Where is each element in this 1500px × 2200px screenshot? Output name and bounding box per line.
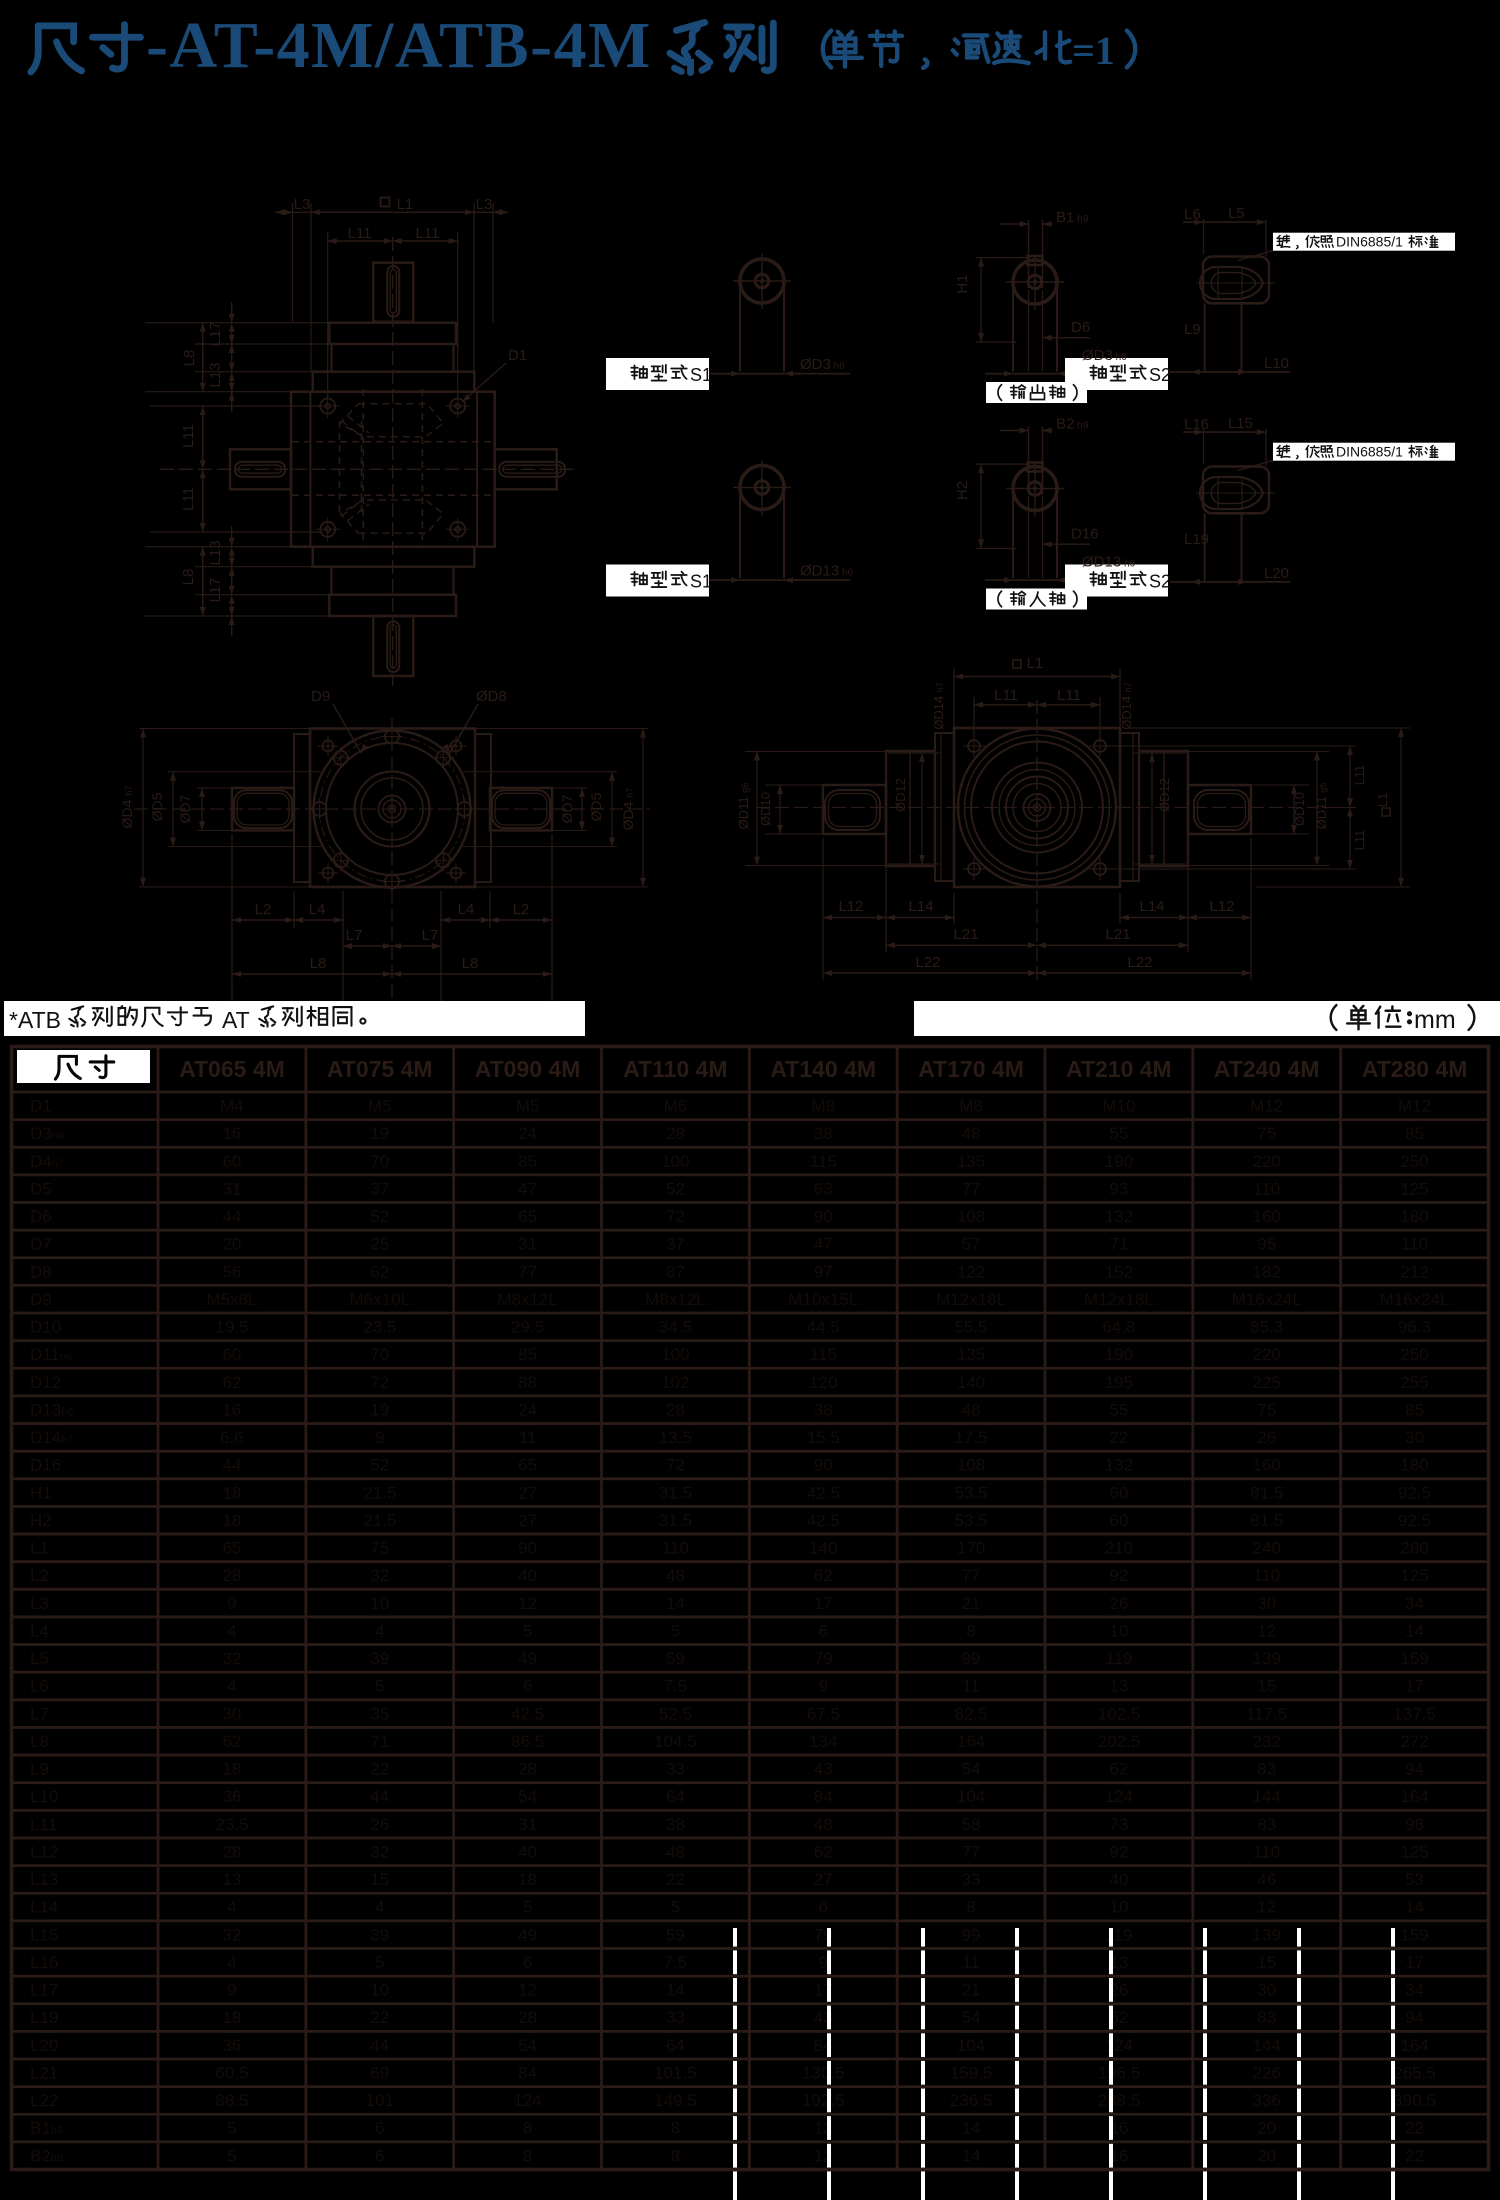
svg-text:ØD11 g6: ØD11 g6: [1314, 783, 1329, 830]
svg-text:L2: L2: [255, 901, 272, 918]
svg-text:60: 60: [1109, 1511, 1128, 1530]
svg-text:10: 10: [370, 1981, 389, 2000]
svg-text:18: 18: [222, 1760, 241, 1779]
svg-text:54: 54: [518, 2036, 537, 2055]
svg-text:48: 48: [666, 1842, 685, 1861]
svg-text:33: 33: [962, 1870, 981, 1889]
svg-text:97: 97: [814, 1262, 833, 1281]
svg-text:39: 39: [370, 1649, 389, 1668]
svg-text:124: 124: [1105, 2036, 1133, 2055]
svg-text:336: 336: [1253, 2091, 1281, 2110]
svg-text:190: 190: [1105, 1345, 1133, 1364]
svg-text:8: 8: [966, 1898, 975, 1917]
svg-text:125: 125: [1400, 1566, 1428, 1585]
svg-text:62: 62: [370, 1262, 389, 1281]
svg-text:ØD12: ØD12: [893, 778, 908, 812]
svg-text:L1: L1: [397, 196, 414, 213]
svg-text:110: 110: [1253, 1842, 1280, 1861]
svg-text:L3: L3: [476, 196, 493, 213]
svg-text:72: 72: [666, 1456, 685, 1475]
svg-text:110: 110: [1253, 1179, 1280, 1198]
svg-text:31: 31: [222, 1179, 241, 1198]
svg-text:5: 5: [375, 1677, 384, 1696]
svg-text:14: 14: [666, 1594, 685, 1613]
svg-text:ØD12: ØD12: [1157, 778, 1172, 812]
svg-text:90: 90: [814, 1456, 833, 1475]
svg-text:13: 13: [222, 1870, 241, 1889]
svg-text:15: 15: [1257, 1677, 1276, 1696]
svg-text:39: 39: [370, 1925, 389, 1944]
svg-text:75: 75: [1257, 1124, 1276, 1143]
svg-text:L11: L11: [416, 225, 440, 242]
svg-text:ØD4 h7: ØD4 h7: [620, 788, 636, 831]
svg-text:9: 9: [227, 1594, 236, 1613]
svg-text:265.5: 265.5: [1393, 2063, 1436, 2082]
svg-text:D11g6: D11g6: [30, 1345, 72, 1364]
svg-text:232: 232: [1253, 1732, 1281, 1751]
svg-text:M5: M5: [368, 1097, 392, 1116]
svg-text:15.5: 15.5: [807, 1428, 840, 1447]
svg-text:L6: L6: [30, 1677, 49, 1696]
svg-text:10: 10: [1109, 1621, 1128, 1640]
svg-text:64.8: 64.8: [1102, 1318, 1135, 1337]
svg-text:46: 46: [1257, 1870, 1276, 1889]
svg-text:52: 52: [370, 1456, 389, 1475]
svg-text:L16: L16: [30, 1953, 58, 1972]
svg-text:L13: L13: [207, 362, 224, 387]
svg-text:L6: L6: [1184, 206, 1201, 223]
svg-text:81.5: 81.5: [1250, 1483, 1283, 1502]
svg-text:26: 26: [1257, 1428, 1276, 1447]
svg-text:M6x10L: M6x10L: [350, 1290, 410, 1309]
svg-text:AT: AT: [222, 1007, 250, 1033]
svg-text:21.5: 21.5: [363, 1511, 396, 1530]
svg-text:75: 75: [1257, 1400, 1276, 1419]
svg-text:110: 110: [1401, 1235, 1428, 1254]
svg-text:L20: L20: [30, 2036, 58, 2055]
svg-text:65: 65: [222, 1539, 241, 1558]
svg-text:8: 8: [966, 1621, 975, 1640]
svg-text:88: 88: [518, 1373, 537, 1392]
svg-text:ØD13 h6: ØD13 h6: [800, 563, 854, 580]
svg-text:27: 27: [518, 1483, 537, 1502]
svg-text:28: 28: [222, 1566, 241, 1585]
svg-text:L1: L1: [30, 1539, 49, 1558]
svg-text:D14h7: D14h7: [30, 1428, 73, 1447]
svg-text:9: 9: [819, 1677, 828, 1696]
svg-text:24: 24: [518, 1400, 537, 1419]
svg-text:B2h9: B2h9: [30, 2146, 63, 2165]
svg-text:6: 6: [819, 1621, 828, 1640]
svg-text:40: 40: [518, 1842, 537, 1861]
svg-text:180: 180: [1400, 1207, 1428, 1226]
svg-text:L11: L11: [30, 1815, 57, 1834]
svg-text:57: 57: [962, 1235, 981, 1254]
svg-text:95: 95: [1257, 1235, 1276, 1254]
svg-text:L8: L8: [30, 1732, 49, 1751]
svg-text:390.5: 390.5: [1393, 2091, 1436, 2110]
svg-text:6: 6: [523, 1677, 532, 1696]
svg-text:14: 14: [666, 1981, 685, 2000]
svg-text:84: 84: [814, 1787, 833, 1806]
svg-text:38: 38: [814, 1124, 833, 1143]
svg-text:47: 47: [814, 1235, 833, 1254]
svg-text:7.5: 7.5: [664, 1953, 688, 1972]
svg-text:L4: L4: [30, 1621, 49, 1640]
svg-text:AT110 4M: AT110 4M: [623, 1056, 727, 1082]
svg-text:236.5: 236.5: [950, 2091, 993, 2110]
svg-text:L15: L15: [30, 1925, 58, 1944]
svg-text:53.5: 53.5: [955, 1483, 988, 1502]
svg-text:L22: L22: [30, 2091, 58, 2110]
svg-text:101: 101: [366, 2091, 394, 2110]
svg-text:L4: L4: [309, 901, 326, 918]
svg-text:L14: L14: [908, 898, 933, 915]
svg-text:28: 28: [518, 2008, 537, 2027]
svg-text:160: 160: [1253, 1456, 1281, 1475]
svg-text:23.5: 23.5: [363, 1318, 396, 1337]
svg-text:36: 36: [222, 1787, 241, 1806]
svg-text:L11: L11: [1352, 830, 1367, 851]
svg-text:52: 52: [370, 1207, 389, 1226]
svg-text:38: 38: [814, 1400, 833, 1419]
svg-text:60: 60: [222, 1345, 241, 1364]
svg-text:164: 164: [1400, 1787, 1428, 1806]
svg-text:170: 170: [957, 1539, 985, 1558]
svg-text:164: 164: [957, 1732, 985, 1751]
svg-text:202.5: 202.5: [1098, 1732, 1141, 1751]
svg-text:47: 47: [518, 1179, 537, 1198]
svg-text:30: 30: [1257, 1594, 1276, 1613]
svg-text:84: 84: [518, 2063, 537, 2082]
svg-text:85: 85: [518, 1345, 537, 1364]
svg-text:L12: L12: [30, 1842, 58, 1861]
svg-text:190: 190: [1105, 1152, 1133, 1171]
svg-text:98: 98: [1405, 1815, 1424, 1834]
svg-text:5: 5: [671, 1621, 680, 1640]
svg-text:M10: M10: [1102, 1097, 1135, 1116]
svg-text:93: 93: [1109, 1179, 1128, 1198]
svg-text:104: 104: [957, 2036, 985, 2055]
svg-text:ØD14 h7: ØD14 h7: [931, 682, 946, 730]
svg-text:14: 14: [1405, 1898, 1424, 1917]
svg-text:43: 43: [814, 1760, 833, 1779]
svg-text:D13h6: D13h6: [30, 1400, 73, 1419]
svg-text:6: 6: [375, 2119, 384, 2138]
svg-text:L11: L11: [180, 424, 197, 448]
svg-text:210: 210: [1105, 1539, 1133, 1558]
svg-text:115: 115: [810, 1345, 837, 1364]
svg-text:L7: L7: [422, 927, 439, 944]
svg-text:S2: S2: [1149, 365, 1171, 385]
svg-text:288.5: 288.5: [1098, 2091, 1141, 2110]
svg-text:44.5: 44.5: [807, 1318, 840, 1337]
svg-text:21.5: 21.5: [363, 1483, 396, 1502]
svg-text:ØD5: ØD5: [149, 792, 165, 821]
svg-text:86.5: 86.5: [511, 1732, 544, 1751]
svg-text:S1: S1: [690, 572, 712, 592]
svg-text:48: 48: [962, 1124, 981, 1143]
svg-text:31: 31: [518, 1815, 537, 1834]
svg-text:-AT-4M/ATB-4M: -AT-4M/ATB-4M: [146, 9, 652, 82]
svg-text:75: 75: [370, 1539, 389, 1558]
svg-text:280: 280: [1400, 1539, 1428, 1558]
svg-text:L7: L7: [30, 1704, 49, 1723]
svg-text:31.5: 31.5: [659, 1483, 692, 1502]
svg-text:69: 69: [370, 2063, 389, 2082]
svg-text:=1: =1: [1072, 28, 1115, 73]
svg-text:L11: L11: [1352, 765, 1367, 786]
svg-text:L19: L19: [1184, 531, 1209, 548]
svg-text:L11: L11: [348, 225, 372, 242]
svg-text:AT090 4M: AT090 4M: [475, 1056, 581, 1082]
svg-text:226: 226: [1253, 2063, 1281, 2082]
svg-text:83: 83: [1257, 1760, 1276, 1779]
svg-text:99: 99: [962, 1649, 981, 1668]
svg-text:44: 44: [222, 1207, 241, 1226]
svg-text:5: 5: [227, 2146, 236, 2165]
svg-text:L20: L20: [1264, 565, 1289, 582]
svg-text:104: 104: [957, 1787, 985, 1806]
svg-text:180: 180: [1400, 1456, 1428, 1475]
svg-text:12: 12: [1257, 1621, 1276, 1640]
svg-text:L17: L17: [207, 577, 224, 602]
svg-text:30: 30: [222, 1704, 241, 1723]
svg-text:17: 17: [1405, 1677, 1424, 1696]
svg-text:59: 59: [666, 1649, 685, 1668]
svg-text:L8: L8: [181, 350, 198, 367]
svg-text:L13: L13: [30, 1870, 58, 1889]
svg-text:49: 49: [518, 1925, 537, 1944]
svg-text:37: 37: [666, 1235, 685, 1254]
svg-text:42.5: 42.5: [511, 1704, 544, 1723]
svg-text:58: 58: [962, 1815, 981, 1834]
svg-text:25: 25: [370, 1235, 389, 1254]
svg-text:24: 24: [518, 1124, 537, 1143]
svg-text:ØD14 h7: ØD14 h7: [1119, 682, 1134, 730]
svg-text:26: 26: [1109, 1594, 1128, 1613]
svg-text:D12: D12: [30, 1373, 61, 1392]
svg-text:92.5: 92.5: [1398, 1511, 1431, 1530]
svg-text:6: 6: [375, 2146, 384, 2165]
svg-text:85: 85: [1405, 1400, 1424, 1419]
svg-text:M12: M12: [1250, 1097, 1283, 1116]
svg-text:135: 135: [957, 1152, 985, 1171]
svg-text:L16: L16: [1184, 416, 1209, 433]
svg-text:AT170 4M: AT170 4M: [918, 1056, 1024, 1082]
svg-text:250: 250: [1400, 1152, 1428, 1171]
svg-text:13: 13: [1109, 1677, 1128, 1696]
svg-text:28: 28: [518, 1760, 537, 1779]
svg-text:36: 36: [222, 2036, 241, 2055]
svg-text:AT065 4M: AT065 4M: [179, 1056, 285, 1082]
svg-text:125: 125: [1400, 1842, 1428, 1861]
svg-text:60: 60: [222, 1152, 241, 1171]
svg-text:34.5: 34.5: [659, 1318, 692, 1337]
svg-text:49: 49: [518, 1649, 537, 1668]
svg-text:4: 4: [227, 1953, 236, 1972]
svg-text:H2: H2: [30, 1511, 52, 1530]
svg-text:8: 8: [671, 2146, 680, 2165]
svg-text:159.5: 159.5: [950, 2063, 993, 2082]
svg-text:108: 108: [957, 1456, 985, 1475]
svg-text:73: 73: [1109, 1815, 1128, 1834]
svg-text:ØD4 h7: ØD4 h7: [119, 786, 135, 829]
svg-text:70: 70: [370, 1152, 389, 1171]
svg-text:22: 22: [1109, 1428, 1128, 1447]
svg-text:18: 18: [222, 1511, 241, 1530]
svg-text:62: 62: [222, 1373, 241, 1392]
svg-text:AT240 4M: AT240 4M: [1214, 1056, 1320, 1082]
svg-text:8: 8: [671, 2119, 680, 2138]
svg-text:10: 10: [370, 1594, 389, 1613]
svg-text:M8: M8: [959, 1097, 983, 1116]
svg-text:220: 220: [1253, 1345, 1281, 1364]
svg-text:D1: D1: [508, 347, 527, 364]
svg-text:18: 18: [518, 1870, 537, 1889]
svg-text:L21: L21: [30, 2063, 58, 2082]
svg-text:4: 4: [375, 1898, 384, 1917]
svg-text:42.5: 42.5: [807, 1483, 840, 1502]
svg-text:110: 110: [662, 1539, 689, 1558]
svg-text:19.5: 19.5: [215, 1318, 248, 1337]
svg-text:64: 64: [666, 2036, 685, 2055]
svg-text:29.5: 29.5: [511, 1318, 544, 1337]
svg-text:87: 87: [666, 1262, 685, 1281]
svg-text:D8: D8: [30, 1262, 52, 1281]
svg-text:D9: D9: [30, 1290, 52, 1309]
svg-text:102.5: 102.5: [1098, 1704, 1141, 1723]
svg-text:30: 30: [1405, 1428, 1424, 1447]
svg-text:L3: L3: [294, 196, 311, 213]
svg-text:85: 85: [518, 1152, 537, 1171]
svg-text:54: 54: [962, 2008, 981, 2027]
svg-text:124: 124: [1105, 1787, 1133, 1806]
svg-text:AT280 4M: AT280 4M: [1362, 1056, 1468, 1082]
svg-text:77: 77: [962, 1566, 981, 1585]
svg-text:92: 92: [1109, 1842, 1128, 1861]
svg-text:92.5: 92.5: [1398, 1483, 1431, 1502]
svg-text:M8: M8: [811, 1097, 835, 1116]
svg-text:15: 15: [1257, 1953, 1276, 1972]
svg-text:15: 15: [370, 1870, 389, 1889]
svg-text:6: 6: [819, 1898, 828, 1917]
svg-text:77: 77: [518, 1262, 537, 1281]
svg-text:240: 240: [1253, 1539, 1281, 1558]
svg-text:38: 38: [666, 1815, 685, 1834]
svg-text:33: 33: [666, 2008, 685, 2027]
svg-text:L2: L2: [30, 1566, 49, 1585]
svg-text:71: 71: [1109, 1235, 1128, 1254]
svg-text:119: 119: [1105, 1649, 1132, 1668]
svg-text:L21: L21: [953, 926, 978, 943]
svg-text:195: 195: [1105, 1373, 1133, 1392]
svg-text:164: 164: [1400, 2036, 1428, 2055]
svg-text:M5: M5: [516, 1097, 540, 1116]
svg-text:ØD3 h6: ØD3 h6: [800, 356, 845, 373]
svg-text:85.3: 85.3: [1250, 1318, 1283, 1337]
svg-text:77: 77: [962, 1179, 981, 1198]
svg-text:M16x24L: M16x24L: [1232, 1290, 1302, 1309]
svg-text:L19: L19: [30, 2008, 58, 2027]
svg-text:70: 70: [370, 1345, 389, 1364]
svg-text:L12: L12: [1209, 898, 1234, 915]
svg-text:135: 135: [957, 1345, 985, 1364]
svg-text:96.3: 96.3: [1398, 1318, 1431, 1337]
svg-text:L5: L5: [30, 1649, 49, 1668]
svg-text:32: 32: [222, 1649, 241, 1668]
svg-text:4: 4: [227, 1621, 236, 1640]
svg-text:255: 255: [1400, 1373, 1428, 1392]
svg-text:L8: L8: [310, 955, 327, 972]
svg-text:137.5: 137.5: [1393, 1704, 1436, 1723]
svg-text:52.5: 52.5: [659, 1704, 692, 1723]
svg-text:B2 h9: B2 h9: [1056, 416, 1089, 433]
svg-text:AT075 4M: AT075 4M: [327, 1056, 433, 1082]
svg-text:L9: L9: [1184, 321, 1201, 338]
svg-text:19: 19: [370, 1124, 389, 1143]
svg-text:92: 92: [1109, 1566, 1128, 1585]
svg-text:44: 44: [222, 1456, 241, 1475]
svg-text:D6: D6: [30, 1207, 52, 1226]
svg-text:149.5: 149.5: [654, 2091, 697, 2110]
svg-text:11: 11: [962, 1677, 980, 1696]
svg-text:DIN6885/1: DIN6885/1: [1336, 234, 1403, 250]
svg-text:28: 28: [666, 1400, 685, 1419]
svg-text:16: 16: [222, 1400, 241, 1419]
svg-text:144: 144: [1253, 2036, 1281, 2055]
svg-text:M8x12L: M8x12L: [645, 1290, 705, 1309]
svg-text:27: 27: [518, 1511, 537, 1530]
svg-text:79: 79: [814, 1649, 833, 1668]
svg-text:134: 134: [809, 1732, 837, 1751]
svg-text:11: 11: [962, 1953, 980, 1972]
svg-text:L17: L17: [30, 1981, 58, 2000]
svg-text:M8x12L: M8x12L: [497, 1290, 557, 1309]
svg-text:14: 14: [1405, 1621, 1424, 1640]
svg-text:5: 5: [523, 1898, 532, 1917]
svg-text:L11: L11: [994, 687, 1018, 704]
svg-text:ØD3 h6: ØD3 h6: [1082, 347, 1127, 364]
svg-text:83: 83: [1257, 2008, 1276, 2027]
svg-text:44: 44: [370, 2036, 389, 2055]
svg-text:53: 53: [1405, 1870, 1424, 1889]
svg-text:55.5: 55.5: [955, 1318, 988, 1337]
svg-text:9: 9: [819, 1953, 828, 1972]
svg-text:77: 77: [962, 1842, 981, 1861]
svg-text:L1: L1: [1375, 793, 1390, 807]
svg-text:L8: L8: [180, 569, 197, 586]
svg-text:M5x8L: M5x8L: [206, 1290, 257, 1309]
svg-text:23.5: 23.5: [215, 1815, 248, 1834]
svg-text:L5: L5: [1228, 205, 1245, 222]
svg-text:14: 14: [962, 2146, 981, 2165]
svg-text:mm: mm: [1414, 1006, 1456, 1034]
svg-text:122: 122: [957, 1262, 985, 1281]
svg-text:B1h9: B1h9: [30, 2119, 63, 2138]
svg-text:ØD7: ØD7: [559, 794, 575, 823]
svg-text:5: 5: [523, 1621, 532, 1640]
svg-text:M16x24L: M16x24L: [1380, 1290, 1450, 1309]
svg-text:S1: S1: [690, 365, 712, 385]
svg-text:62: 62: [1109, 1760, 1128, 1779]
svg-text:272: 272: [1400, 1732, 1428, 1751]
svg-text:ØD11 g6: ØD11 g6: [736, 783, 751, 830]
svg-text:60.5: 60.5: [215, 2063, 248, 2082]
svg-text:12: 12: [518, 1594, 537, 1613]
svg-text:34: 34: [1405, 1594, 1424, 1613]
svg-text:152: 152: [1105, 1262, 1133, 1281]
